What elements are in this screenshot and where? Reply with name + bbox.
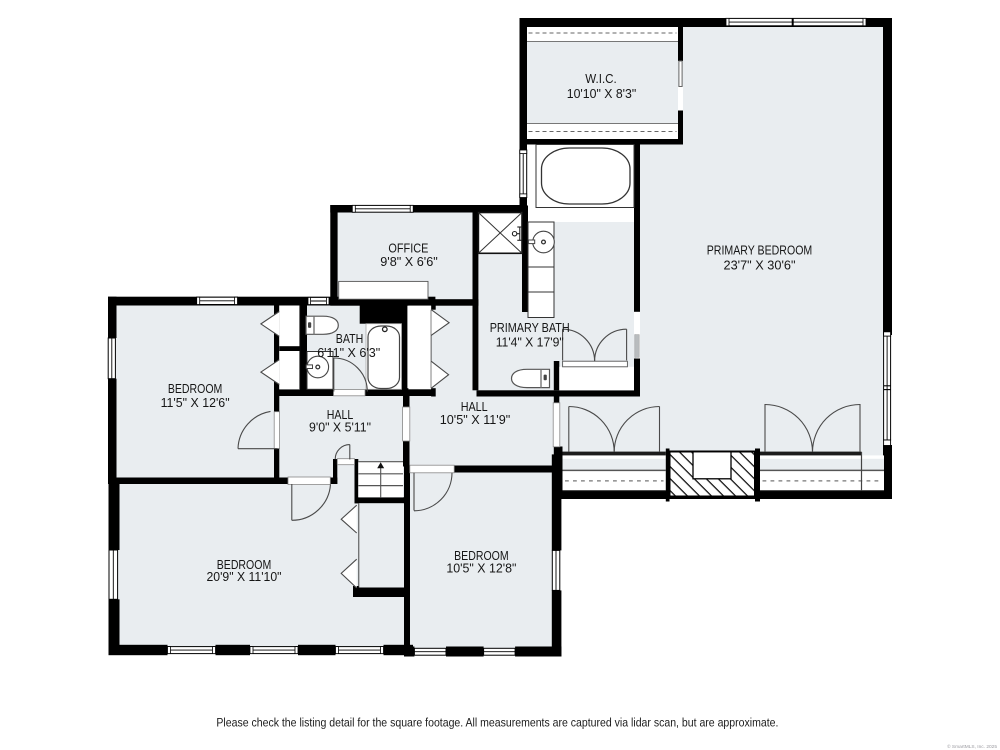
svg-text:6'11" X 6'3": 6'11" X 6'3" — [317, 346, 380, 360]
svg-text:9'8" X 6'6": 9'8" X 6'6" — [380, 255, 438, 269]
svg-text:10'5" X 11'9": 10'5" X 11'9" — [440, 413, 511, 427]
svg-text:20'9" X 11'10": 20'9" X 11'10" — [207, 570, 282, 584]
svg-text:BATH: BATH — [336, 332, 364, 346]
svg-text:11'4" X 17'9": 11'4" X 17'9" — [496, 336, 564, 350]
svg-text:W.I.C.: W.I.C. — [585, 72, 617, 86]
svg-text:PRIMARY BEDROOM: PRIMARY BEDROOM — [707, 243, 813, 257]
svg-text:10'10" X 8'3": 10'10" X 8'3" — [567, 87, 637, 101]
svg-text:11'5" X 12'6": 11'5" X 12'6" — [161, 396, 230, 410]
svg-text:BEDROOM: BEDROOM — [168, 382, 223, 396]
svg-text:10'5" X 12'8": 10'5" X 12'8" — [446, 561, 516, 575]
svg-text:Please check the listing detai: Please check the listing detail for the … — [216, 716, 778, 730]
svg-text:© SmartMLS, Inc. 2025: © SmartMLS, Inc. 2025 — [947, 743, 997, 750]
svg-text:PRIMARY BATH: PRIMARY BATH — [490, 321, 570, 335]
svg-text:9'0" X 5'11": 9'0" X 5'11" — [309, 421, 371, 435]
svg-text:OFFICE: OFFICE — [388, 241, 428, 255]
svg-text:23'7" X 30'6": 23'7" X 30'6" — [724, 259, 796, 273]
